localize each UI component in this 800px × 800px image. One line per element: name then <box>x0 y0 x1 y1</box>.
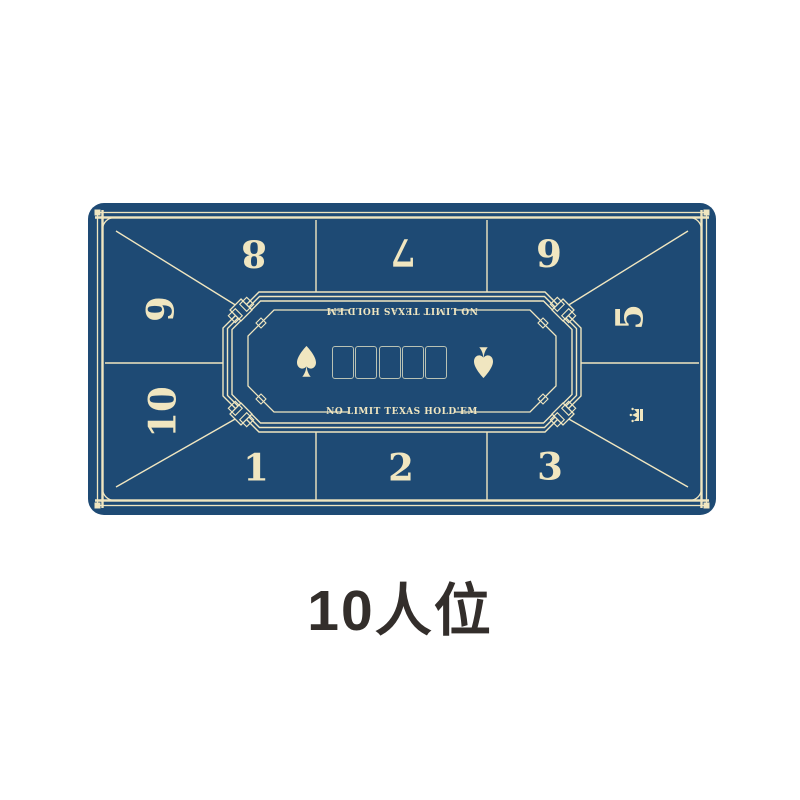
track-title-top: NO LIMIT TEXAS HOLD'EM <box>326 305 478 315</box>
product-caption: 10人位 <box>0 565 800 647</box>
seat-number-9: 9 <box>143 296 180 322</box>
community-card-slot <box>425 346 447 379</box>
seat-number-8: 8 <box>241 235 267 272</box>
community-card-slot <box>355 346 377 379</box>
community-card-slot <box>402 346 424 379</box>
seat-number-2: 2 <box>388 450 414 487</box>
seat-number-3: 3 <box>537 449 563 486</box>
crown-icon <box>629 405 645 425</box>
seat-number-6: 6 <box>536 234 562 271</box>
spade-icon <box>296 346 317 378</box>
community-card-slot <box>332 346 354 379</box>
seat-number-5: 5 <box>612 304 649 330</box>
spade-icon-inverted <box>473 346 494 378</box>
seat-number-1: 1 <box>243 450 269 487</box>
product-image: 8 7 6 9 10 5 1 2 3 NO LIMIT TEXAS HOLD'E… <box>0 0 800 800</box>
community-card-slot <box>379 346 401 379</box>
seat-number-7: 7 <box>390 234 416 271</box>
track-title-bottom: NO LIMIT TEXAS HOLD'EM <box>326 407 478 417</box>
seat-number-10: 10 <box>145 386 182 438</box>
